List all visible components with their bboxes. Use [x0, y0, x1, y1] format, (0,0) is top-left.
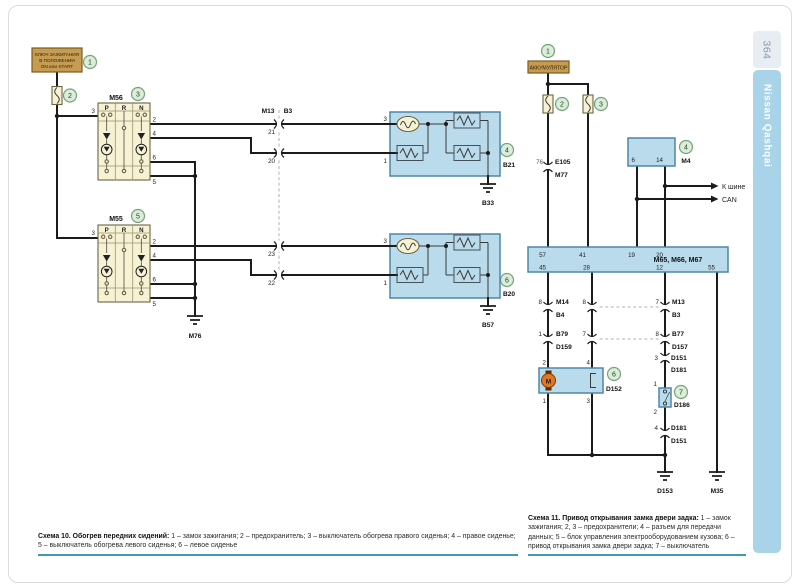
conn-pin-20: 20 — [268, 158, 275, 165]
bcm-pin45: 45 — [539, 265, 546, 272]
motor-m-symbol: M — [546, 379, 551, 386]
row2-pin1-left: 1 — [539, 331, 543, 338]
callout-1-number: 1 — [546, 49, 550, 56]
bcm-pin19: 19 — [628, 252, 635, 259]
ground-icon — [187, 316, 203, 324]
ground-m76-label: M76 — [189, 333, 202, 340]
callout-6: 6 — [501, 274, 514, 287]
m56-pin5: 5 — [153, 179, 157, 186]
row1-pin8-left: 8 — [539, 299, 543, 306]
callout-6: 6 — [608, 368, 621, 381]
conn-pin-23: 23 — [268, 251, 275, 258]
m56-pin2: 2 — [153, 117, 157, 124]
m55-pin5: 5 — [153, 301, 157, 308]
m56-label: M56 — [109, 95, 123, 102]
fuse-icon — [52, 87, 62, 105]
battery-box: АККУМУЛЯТОР — [528, 61, 569, 73]
arrow-right-icon — [711, 196, 719, 203]
ground-d153-label: D153 — [657, 488, 673, 495]
ground-icon — [709, 472, 725, 480]
row1-pin7-right: 7 — [656, 299, 660, 306]
row1-m14-label: M14 — [556, 299, 569, 306]
conn-pin-22: 22 — [268, 280, 275, 287]
row2-d157-label: D157 — [672, 344, 688, 351]
seat-left-pin3: 3 — [384, 238, 388, 245]
callout-1: 1 — [542, 45, 555, 58]
seat-left-pin1: 1 — [384, 280, 388, 287]
scheme10-caption-title: Схема 10. Обогрев передних сидений: — [38, 533, 169, 540]
conn-pin-21: 21 — [268, 129, 275, 136]
bcm-pin55: 55 — [708, 265, 715, 272]
caption-rule — [528, 554, 746, 556]
callout-6-number: 6 — [612, 372, 616, 379]
seat-heater-switch-block-left — [98, 225, 150, 302]
brand-sidebar: Nissan Qashqai — [753, 70, 781, 553]
m55-pin2: 2 — [153, 239, 157, 246]
ground-icon — [480, 184, 496, 192]
callout-3: 3 — [595, 98, 608, 111]
switch-col-r: R — [122, 105, 127, 112]
bcm-pin12: 12 — [656, 265, 663, 272]
callout-3: 3 — [132, 88, 145, 101]
connector-link-dashed — [594, 307, 662, 339]
motor-pin3: 3 — [587, 398, 591, 405]
callout-1-number: 1 — [88, 60, 92, 67]
row2-b77-label: B77 — [672, 331, 684, 338]
row1-pin8-mid: 8 — [583, 299, 587, 306]
row1-m13-label: M13 — [672, 299, 685, 306]
callout-7-number: 7 — [679, 390, 683, 397]
switch-col-n: N — [139, 105, 144, 112]
m56-pin3: 3 — [92, 108, 96, 115]
callout-3-number: 3 — [136, 92, 140, 99]
row2-b79-label: B79 — [556, 331, 568, 338]
scheme10-seat-heating: КЛЮЧ ЗАЖИГАНИЯ В ПОЛОЖЕНИИ ON или START … — [32, 48, 515, 340]
seat-heater-switch-block: P R N — [98, 103, 150, 180]
brand-label: Nissan Qashqai — [762, 84, 773, 553]
callout-2-number: 2 — [68, 93, 72, 100]
row4-d181-label: D181 — [671, 425, 687, 432]
ground-b57-label: B57 — [482, 322, 494, 329]
row3-d151-label: D151 — [671, 355, 687, 362]
tailgate-switch-box — [659, 388, 671, 407]
m56-pin6: 6 — [153, 155, 157, 162]
page-number: 364 — [761, 40, 773, 59]
callout-2: 2 — [64, 89, 77, 102]
callout-2-number: 2 — [560, 102, 564, 109]
fuse-icon — [583, 95, 593, 113]
row1-b3-label: B3 — [672, 312, 681, 319]
callout-1: 1 — [84, 56, 97, 69]
scheme11-tailgate-lock: АККУМУЛЯТОР 1 2 3 4 5 6 7 6 14 M4 К шине… — [528, 45, 745, 496]
m55-pin6: 6 — [153, 277, 157, 284]
switch-pin2: 2 — [654, 409, 658, 416]
m56-pin4: 4 — [153, 131, 157, 138]
ground-icon — [657, 472, 673, 480]
row1-b4-label: B4 — [556, 312, 565, 319]
body-control-module-box: 57 41 19 20 45 28 12 55 M65, M66, M67 — [528, 247, 728, 272]
callout-7: 7 — [675, 386, 688, 399]
battery-label: АККУМУЛЯТОР — [530, 66, 568, 72]
m55-pin4: 4 — [153, 253, 157, 260]
seat-right-code: B21 — [503, 162, 515, 169]
callout-6-number: 6 — [505, 278, 509, 285]
row2-pin8-right: 8 — [656, 331, 660, 338]
switch-col-p: P — [105, 105, 109, 112]
callout-4: 4 — [680, 141, 693, 154]
lock-actuator-box: M — [539, 368, 603, 393]
seat-right-pin1: 1 — [384, 158, 388, 165]
motor-pin2: 2 — [543, 360, 547, 367]
ignition-text-line2: В ПОЛОЖЕНИИ — [39, 58, 75, 63]
m4-pin14: 14 — [656, 157, 663, 164]
m77-label: M77 — [555, 172, 568, 179]
row4-d151-label: D151 — [671, 438, 687, 445]
m55-pin3: 3 — [92, 230, 96, 237]
bcm-pin57: 57 — [539, 252, 546, 259]
row3-d181-label: D181 — [671, 367, 687, 374]
e105-label: E105 — [555, 159, 571, 166]
scheme11-caption: Схема 11. Привод открывания замка двери … — [528, 514, 746, 556]
callout-4-number: 4 — [684, 145, 688, 152]
ignition-text-line3: ON или START — [41, 64, 74, 69]
caption-rule — [38, 554, 518, 556]
d186-label: D186 — [674, 402, 690, 409]
connector-m13-label: M13 — [262, 108, 275, 115]
row2-pin7-mid: 7 — [583, 331, 587, 338]
e105-pin76: 76 — [536, 159, 543, 166]
ground-icon — [480, 306, 496, 314]
ground-b33-label: B33 — [482, 200, 494, 207]
row4-pin4: 4 — [655, 425, 659, 432]
can-bus-label-line1: К шине — [722, 184, 745, 191]
callout-3-number: 3 — [599, 102, 603, 109]
row2-d159-label: D159 — [556, 344, 572, 351]
fuse-icon — [543, 95, 553, 113]
callout-4: 4 — [501, 144, 514, 157]
seat-heater-element — [390, 112, 500, 184]
seat-heater-element-left — [390, 234, 500, 306]
arrow-right-icon — [711, 183, 719, 190]
motor-pin1: 1 — [543, 398, 547, 405]
callout-5: 5 — [132, 210, 145, 223]
callout-5-number: 5 — [136, 214, 140, 221]
connector-b3-label: B3 — [284, 108, 293, 115]
scheme10-caption: Схема 10. Обогрев передних сидений: 1 – … — [38, 532, 518, 556]
callout-2: 2 — [556, 98, 569, 111]
ignition-key-box: КЛЮЧ ЗАЖИГАНИЯ В ПОЛОЖЕНИИ ON или START — [32, 48, 82, 72]
bcm-label: M65, M66, M67 — [654, 257, 703, 264]
can-bus-label-line2: CAN — [722, 197, 737, 204]
page-number-tab: 364 — [753, 31, 781, 68]
seat-left-code: B20 — [503, 291, 515, 298]
manual-page: КЛЮЧ ЗАЖИГАНИЯ В ПОЛОЖЕНИИ ON или START … — [0, 0, 800, 588]
callout-4-number: 4 — [505, 148, 509, 155]
ground-m35-label: M35 — [711, 488, 724, 495]
m4-label: M4 — [681, 158, 690, 165]
bcm-pin41: 41 — [579, 252, 586, 259]
m4-pin6: 6 — [632, 157, 636, 164]
seat-right-pin3: 3 — [384, 116, 388, 123]
d152-label: D152 — [606, 386, 622, 393]
bcm-pin28: 28 — [583, 265, 590, 272]
ignition-text-line1: КЛЮЧ ЗАЖИГАНИЯ — [35, 52, 79, 57]
wiring-diagram-canvas: КЛЮЧ ЗАЖИГАНИЯ В ПОЛОЖЕНИИ ON или START … — [0, 0, 800, 588]
data-link-connector-box: 6 14 — [628, 138, 675, 166]
switch-pin1: 1 — [654, 381, 658, 388]
row3-pin3: 3 — [655, 355, 659, 362]
motor-pin4: 4 — [587, 360, 591, 367]
scheme11-caption-title: Схема 11. Привод открывания замка двери … — [528, 515, 699, 522]
m55-label: M55 — [109, 216, 123, 223]
